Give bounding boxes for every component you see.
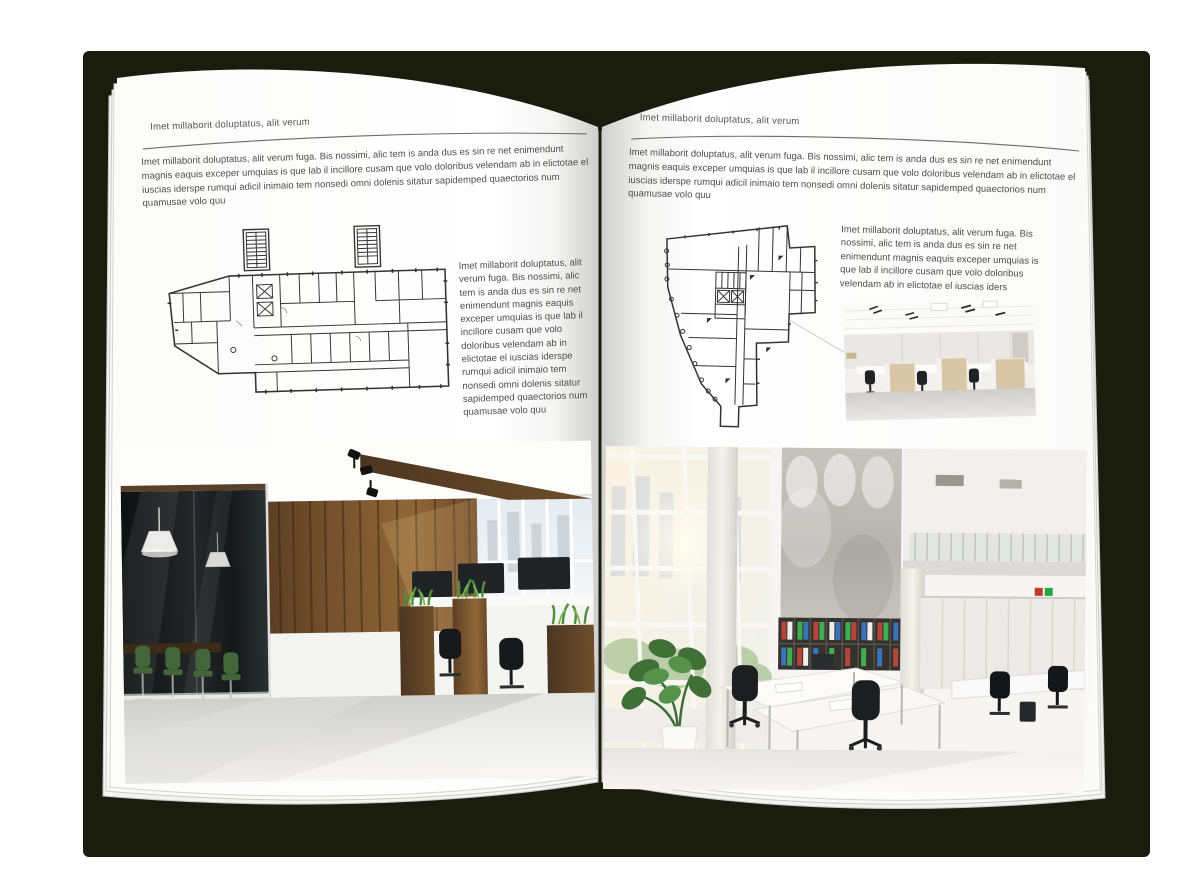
- photo-office-workstations: [843, 298, 1036, 421]
- left-intro-paragraph: Imet millaborit doluptatus, alit verum f…: [141, 142, 591, 211]
- photo-office-atrium: [603, 446, 1087, 793]
- stair-tower-icon: [243, 226, 380, 271]
- book-mockup-scene: Imet millaborit doluptatus, alit verum I…: [0, 0, 1200, 891]
- waste-bin: [1020, 702, 1036, 722]
- exit-sign-icon: [1045, 588, 1053, 596]
- mezzanine: [903, 449, 1087, 577]
- column: [705, 447, 738, 790]
- safety-sign-icon: [1035, 588, 1043, 596]
- column-dots: [661, 249, 721, 401]
- bookshelf: [778, 618, 902, 671]
- floor-plan-left: [159, 220, 457, 419]
- right-figure-text: Imet millaborit doluptatus, alit verum f…: [840, 223, 1044, 295]
- photo-office-loft: [120, 441, 596, 784]
- left-figure-text: Imet millaborit doluptatus, alit verum f…: [458, 256, 593, 420]
- left-page-content: Imet millaborit doluptatus, alit verum I…: [140, 108, 598, 442]
- right-intro-paragraph: Imet millaborit doluptatus, alit verum f…: [628, 146, 1081, 212]
- right-header-rule: [629, 128, 1081, 149]
